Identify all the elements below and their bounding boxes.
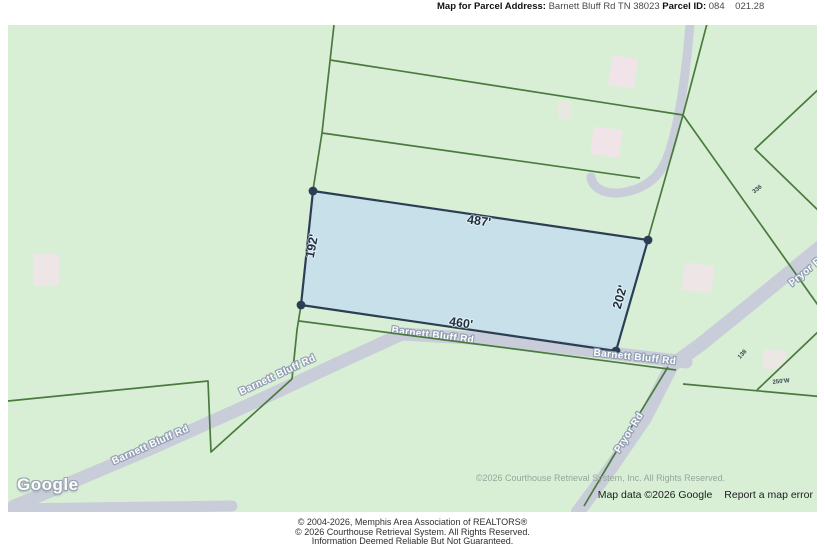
map-attribution-row: Map data ©2026 GoogleReport a map error <box>598 489 813 501</box>
map-canvas[interactable]: Barnett Bluff Rd 487' 460' 192' <box>8 25 817 512</box>
google-logo[interactable]: Google <box>17 475 79 495</box>
building <box>558 101 572 119</box>
footer-line-3: Information Deemed Reliable But Not Guar… <box>0 537 825 547</box>
building <box>590 126 623 158</box>
building <box>33 254 59 286</box>
parcel-corner <box>309 187 318 196</box>
parcel-id-value: 084 021.28 <box>706 1 764 12</box>
map-data-attribution: Map data ©2026 Google <box>598 489 713 501</box>
road-bottom-strip <box>8 506 232 509</box>
overlay-copyright: ©2026 Courthouse Retrieval System, Inc. … <box>388 473 813 483</box>
building <box>681 262 715 294</box>
parcel-corner <box>644 236 653 245</box>
map-svg: Barnett Bluff Rd 487' 460' 192' <box>8 25 817 512</box>
parcel-id-label: Parcel ID: <box>662 1 706 12</box>
parcel-corner <box>297 301 306 310</box>
building <box>608 55 638 88</box>
building <box>762 349 787 370</box>
address-label: Map for Parcel Address: <box>437 1 546 12</box>
address-value: Barnett Bluff Rd TN 38023 <box>546 1 662 12</box>
header-bar: Map for Parcel Address: Barnett Bluff Rd… <box>0 0 825 16</box>
report-map-error-link[interactable]: Report a map error <box>724 489 813 501</box>
page-title: Map for Parcel Address: Barnett Bluff Rd… <box>437 1 764 12</box>
footer-disclaimer: © 2004-2026, Memphis Area Association of… <box>0 518 825 547</box>
